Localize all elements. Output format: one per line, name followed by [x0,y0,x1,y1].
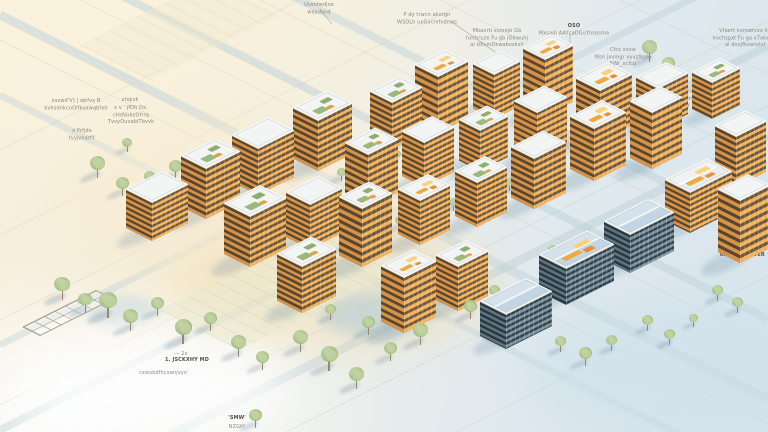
tree-canopy [285,226,294,234]
tree [175,319,192,346]
tree [240,159,255,183]
building-roof [415,50,468,77]
roof-deco [459,246,472,252]
roof-deco [600,69,614,76]
grid-line [0,0,768,74]
tree-canopy [244,162,255,172]
building-wall [206,151,240,219]
annotation-label: Cfcs xxvwMsn jxvmgr xyvzfkjdnSWr_xcfcu [595,46,652,68]
roof-deco [694,166,711,175]
tree [642,315,653,333]
tree [505,178,514,192]
building-roof [339,182,392,209]
tree-canopy [231,335,246,349]
tree-shadow [385,158,399,167]
tree-canopy [606,229,612,235]
building-wall [404,261,436,333]
tree-canopy [116,177,129,189]
tree-canopy [154,300,163,309]
annotation-label: OSOMxsadi AAYcaDGuYhsosma [539,22,609,36]
tree [392,150,401,164]
tree-canopy [90,156,105,170]
building-shadow [384,225,432,258]
building-shadow [363,311,418,349]
tree-trunk [494,294,495,301]
tree-canopy [94,159,105,169]
tree-canopy [446,286,454,293]
annotation-line: Mxsadi AAYcaDGuYhsosma [539,29,609,36]
tree-shadow [79,169,102,184]
street-line [0,0,768,345]
ground-tint [10,330,290,432]
grid-line [0,0,768,254]
tree-trunk [669,338,670,345]
roof-deco [251,192,266,200]
tree [54,276,70,302]
tree-canopy [326,350,338,361]
tree-shadow [547,346,564,357]
annotation-line: xfxkvk [121,96,138,103]
annotation-line: UAACXEATEVER [720,251,765,258]
tree-canopy [341,240,347,246]
roof-deco [398,264,413,272]
roof-deco [486,117,494,121]
building-wall [420,185,450,245]
tree-trunk [300,343,301,352]
tree-canopy [172,163,181,172]
building-wall [181,155,206,219]
tree-shadow [338,380,361,395]
tree-shadow [385,305,402,316]
tree [664,329,675,347]
building-wall [232,135,258,195]
tree-canopy [127,312,138,322]
building-wall [594,112,626,181]
tree [606,335,617,353]
tree-shadow [141,309,161,322]
tree [395,216,404,230]
tree-canopy [125,140,132,147]
annotation-line: hxchruze Fu gb jObwuhj [466,34,528,41]
annotation-line: P dy trwcn akxrgn [397,11,457,18]
tree-canopy [252,412,261,421]
street-line [0,0,768,319]
annotation-line: 1. JSCKXHY MD [165,356,209,363]
tree-trunk [509,186,510,191]
annotation-label: cxwvbdfhcxanjvyv [139,369,187,376]
tree-shadow [229,172,252,187]
roof-deco [258,200,268,205]
tree [393,295,404,313]
tree-canopy [175,319,192,334]
roof-deco [588,115,604,123]
building-wall [545,45,573,116]
roof-deco [475,118,489,125]
tree-trunk [737,306,738,313]
annotation-line: SWr_xcfcu [595,60,652,67]
annotation-label: P dy trwcn akxrgnWSDLh uxGvcrvfvdnws [397,11,457,25]
tree-canopy [712,285,723,295]
tree-shadow [724,307,741,318]
tree-trunk [206,164,207,171]
roof-deco [399,89,407,93]
tree-shadow [308,361,334,378]
tree-canopy [396,297,404,304]
building-wall [506,291,552,349]
tree-shadow [402,336,425,351]
roof-deco [561,250,583,261]
tree-canopy [256,351,269,363]
tree-trunk [396,158,397,163]
building-shadow [397,111,453,149]
annotation-line: Vfaert kxmwrcvx lix [713,27,768,34]
building-shadow [592,251,641,284]
tree-trunk [97,169,98,178]
building-wall [362,193,392,267]
tree-trunk [233,212,234,217]
tree-trunk [255,420,256,428]
tree [548,245,557,259]
annotation-line: xvcdrxr [642,80,704,87]
building-wall [576,78,600,141]
tree-trunk [420,336,421,345]
building-wall [566,244,614,305]
tree-trunk [210,323,211,331]
tree-trunk [127,146,128,152]
roof-deco [368,134,381,140]
tree-canopy [609,337,617,344]
tree [362,316,375,337]
tree-trunk [247,172,248,181]
building-wall [534,142,566,209]
tree [144,171,155,189]
tree-trunk [62,290,63,300]
tree-canopy [735,299,743,306]
annotation-label: x PrfjdefvyjvharfY [69,127,95,141]
roof-deco [453,254,468,261]
tree-canopy [249,409,262,421]
annotation-line: xsxwd'V) | wkfvx B [44,97,107,104]
annotation-line: wexdvnd [304,8,334,15]
building-wall [658,73,688,129]
roof-deco [446,61,455,66]
building-wall [539,254,566,305]
annotation-line: NZGH' [229,423,246,430]
tree [555,336,566,354]
tree-canopy [349,367,364,381]
street-line [0,15,768,399]
grid-line [0,0,768,320]
tree-canopy [395,216,404,224]
annotation-line: TvvyOuvablTbvvk [108,118,154,125]
tree [464,300,477,321]
tree [662,57,675,78]
building-shadow [262,291,314,327]
grid-line [0,21,768,405]
tree-shadow [652,69,672,82]
tree-canopy [169,160,182,172]
tree-trunk [647,324,648,331]
tree-canopy [451,200,457,206]
building-roof [398,174,450,200]
building-wall [715,125,736,187]
tree-shadow [306,190,321,200]
building-shadow [272,228,322,262]
tree-trunk [448,293,449,300]
roof-deco [369,195,377,199]
tree-shadow [330,176,344,185]
building-shadow [165,196,220,233]
tree-canopy [443,284,454,294]
tree-canopy [231,206,237,212]
building-shadow [611,148,666,186]
tree-shadow [194,324,214,337]
building-roof [511,131,566,159]
roof-deco [429,185,438,189]
tree-canopy [467,303,476,312]
tree-canopy [558,338,566,345]
grid-line [0,191,768,432]
building-wall [630,101,652,169]
ground-tint [170,215,500,355]
building-roof [459,106,508,131]
roof-deco [708,71,722,78]
tree-canopy [548,245,557,253]
tree-canopy [313,182,323,191]
roof-deco [297,252,314,260]
annotation-line: Msn jxvmgr xyvzfkjdn [595,53,652,60]
roof-deco [438,56,451,63]
roof-deco [313,106,330,114]
annotation-label: x v ' jfOh Dx.cHdVukeOfrrqTvvyOuvablTbvv… [108,104,154,126]
tree-trunk [328,361,329,371]
roof-deco [552,45,561,49]
building-wall [392,87,422,149]
building-shadow [459,100,506,132]
tree-trunk [175,171,176,179]
annotation-line: kvhsdnkcnOlfkuxwqbfxh [44,104,107,111]
tree-trunk [284,163,285,170]
ground-fields [0,0,768,432]
tree [293,330,308,354]
annotation-line: __xftd fvtw [667,95,695,102]
tree-canopy [54,277,70,291]
roof-deco [310,251,319,256]
tree-trunk [318,190,319,196]
roof-deco [583,246,596,252]
tree-trunk [453,206,454,211]
tree-shadow [656,339,673,350]
annotation-line: Cfcs xxvw [595,46,652,53]
building-roof [436,240,488,266]
annotation-label: 1. JSCKXHY MD [165,356,209,363]
annotation-line: cHdVukeOfrrq [108,111,154,118]
building-shadow [441,207,489,240]
annotation-line: xxvf xf [667,102,695,109]
tree-canopy [492,287,500,294]
building-wall [277,253,302,313]
tree [90,156,105,180]
tree-trunk [693,322,694,327]
ground-patches [0,0,768,432]
tree-canopy [59,280,70,291]
tree-shadow [193,165,210,176]
tree-trunk [343,246,344,251]
building-roof [345,128,398,155]
annotation-label: 'SMW' [228,414,246,421]
tree-canopy [715,287,723,294]
tree [231,335,246,359]
tree-shadow [282,343,305,358]
roof-deco [594,107,608,114]
tree-trunk [182,334,183,344]
building-wall [630,212,674,273]
roof-deco [201,154,218,162]
tree [321,346,338,373]
roof-deco [214,153,223,158]
tree-canopy [645,317,653,324]
annotation-line: WSDLh uxGvcrvfvdnws [397,18,457,25]
building-shadow [320,245,377,284]
building-roof [181,139,240,169]
tree-trunk [552,253,553,258]
annotation-label: xvcdrxrRxnvvxduxy xxdfkxxxmxxf fxx [642,80,704,102]
building-shadow [388,167,436,200]
tree [313,181,323,197]
roof-deco [326,105,335,110]
roof-deco [544,40,556,46]
building-shadow [470,328,517,360]
roof-deco [432,63,447,70]
tree [285,226,294,240]
tree-trunk [368,327,369,335]
roof-deco [387,90,402,97]
tree-canopy [604,227,613,235]
tree-canopy [691,316,697,322]
building-shadow [623,109,669,140]
building-shadow [560,119,614,156]
tree [339,238,348,252]
building-wall [480,116,508,171]
tree-canopy [321,346,338,361]
building-roof [539,231,614,269]
tree-shadow [541,253,555,262]
building-wall [286,192,310,249]
street-line [0,0,768,234]
building-wall [636,77,658,129]
tree-trunk [390,353,391,361]
tree-shadow [239,421,259,432]
tree [256,351,269,372]
tree-canopy [449,198,458,206]
tree-trunk [157,308,158,316]
building-wall [511,146,534,209]
tree-canopy [732,297,743,307]
annotation-label: Mbavrti xsmeje Gbhxchruze Fu gb jObwuhja… [466,27,528,49]
tree-canopy [204,157,212,164]
roof-deco [357,196,372,203]
building-roof [523,34,573,59]
grid-line [0,361,768,432]
annotation-label: Uvsnfwdjoewexdvnd [304,1,334,15]
building-shadow [328,186,382,223]
building-roof [455,156,507,182]
ground-grid [0,0,768,432]
building-wall [604,221,630,273]
tree [489,285,500,303]
building-shadow [422,291,470,324]
building-wall [523,48,545,116]
building-wall [415,64,438,133]
tree-trunk [122,188,123,196]
tree-canopy [662,57,675,69]
tree-canopy [507,180,513,186]
tree-trunk [668,68,669,76]
grid-line [0,0,768,344]
tree-shadow [388,224,402,233]
building-wall [345,142,368,207]
tree-trunk [330,313,331,320]
annotation-line: ai dxxjfkxwlvlvl [713,41,768,48]
roof-deco [713,63,725,69]
tree [325,304,336,322]
building-roof [692,58,740,82]
tree-canopy [642,40,657,54]
tree-trunk [470,311,471,319]
tree-trunk [399,224,400,229]
tree-shadow [106,189,126,202]
annotation-label: Vfaert kxmwrcvx lixkvchspxt Fu ga xTxkxu… [713,27,768,49]
building-wall [318,103,352,171]
building-wall [537,97,567,161]
building-shadow [217,172,270,209]
roof-deco [685,176,704,186]
tree-canopy [397,218,403,224]
tree-trunk [608,235,609,240]
roof-deco [362,188,375,194]
tree-trunk [585,358,586,366]
tree-canopy [337,168,346,176]
roof-deco [704,172,716,178]
tree-canopy [240,159,255,173]
building-wall [368,139,398,207]
tree-shadow [435,294,452,305]
tree-trunk [262,362,263,370]
tree-canopy [387,345,396,354]
tree-shadow [631,53,654,68]
tree [384,342,397,363]
tree [579,347,592,368]
tree [413,323,428,347]
grid-line [0,0,768,235]
tree [249,409,262,430]
tree-trunk [560,345,561,352]
annotation-label: NZGH' [229,423,246,430]
annotation-label: — 2x [174,350,187,357]
building-wall [381,265,404,333]
building-roof [514,86,567,113]
roof-deco [539,47,553,54]
tree [337,168,346,182]
tree-shadow [246,363,266,376]
roof-deco [420,180,433,186]
building-wall [665,179,690,233]
tree-canopy [328,306,336,313]
tree-trunk [289,234,290,239]
building-roof [473,51,520,75]
tree-canopy [207,315,216,324]
tree-canopy [384,342,397,354]
